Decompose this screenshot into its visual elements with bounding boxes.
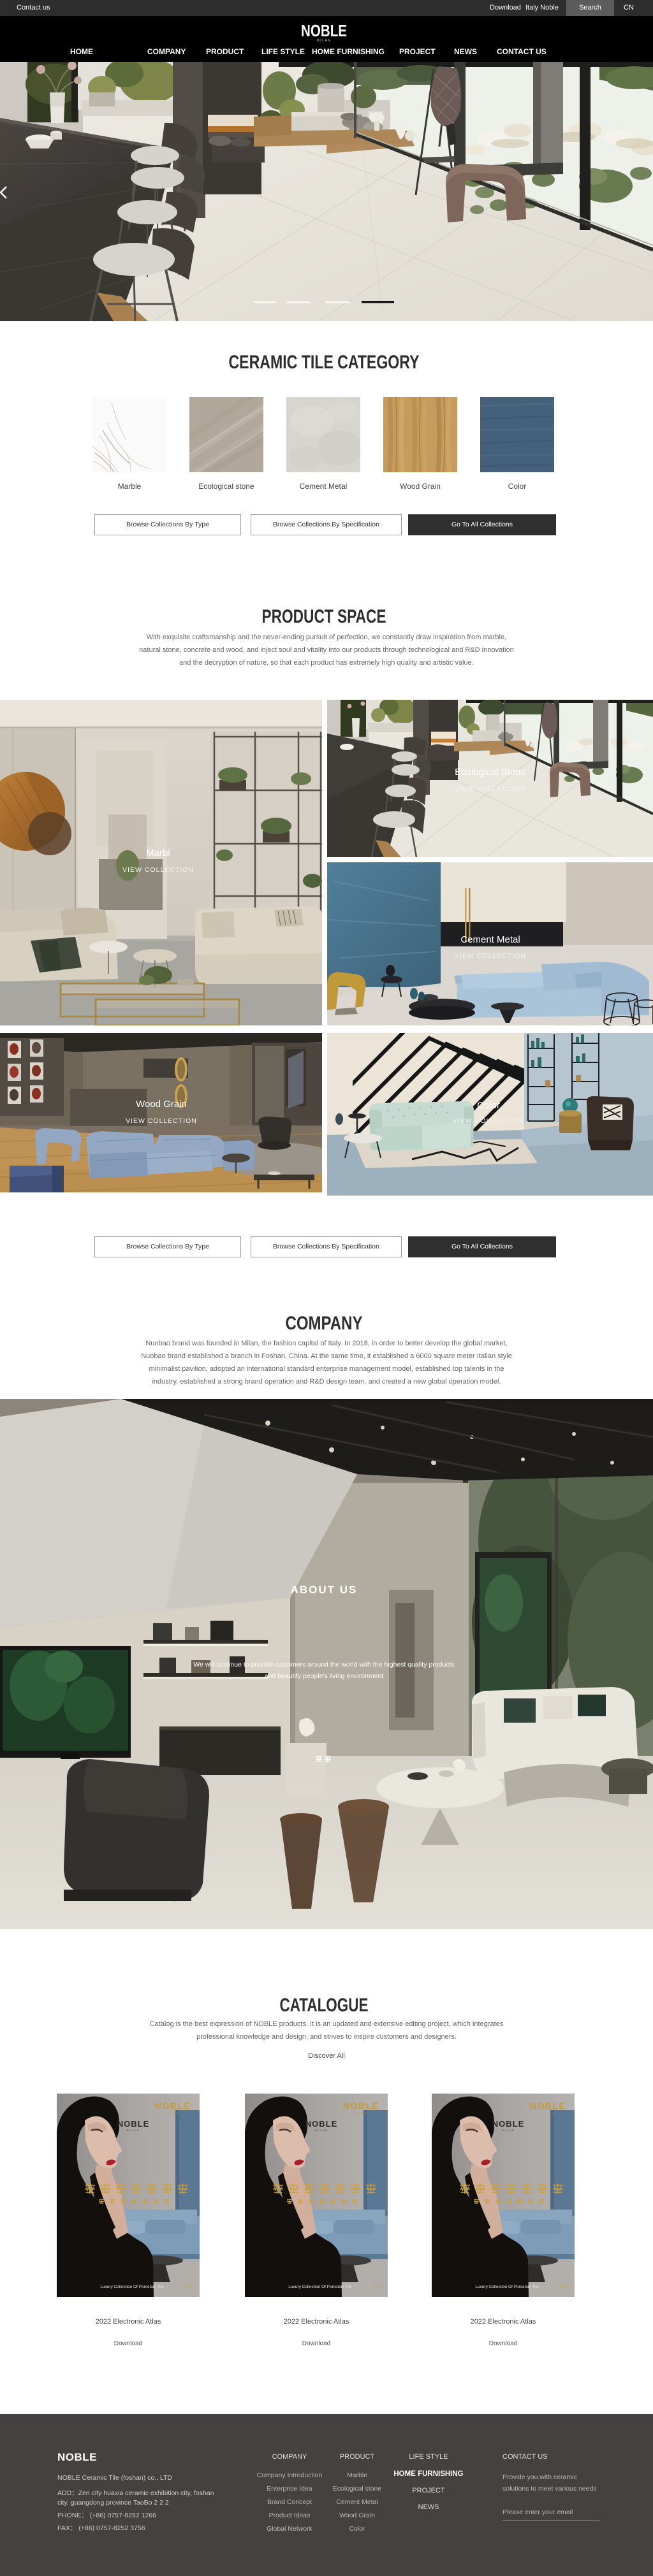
svg-text:We will continue to provide cu: We will continue to provide customers ar…: [193, 1661, 455, 1668]
svg-text:Marbl: Marbl: [146, 848, 170, 858]
svg-text:Luxury Collection Of Porcelain: Luxury Collection Of Porcelain Tile: [288, 2285, 352, 2289]
svg-text:CATALOGUE: CATALOGUE: [280, 1995, 369, 2015]
svg-text:NOBLE: NOBLE: [492, 2119, 525, 2129]
svg-text:MILAN: MILAN: [127, 2129, 140, 2132]
svg-text:Wood Grain: Wood Grain: [136, 1099, 187, 1110]
svg-text:VIEW COLLECTION: VIEW COLLECTION: [122, 866, 194, 874]
svg-text:MILAN: MILAN: [354, 2111, 368, 2115]
svg-text:NOBLE: NOBLE: [343, 2101, 379, 2111]
svg-text:VIEW COLLECTION: VIEW COLLECTION: [126, 1117, 197, 1125]
svg-text:and beautify people's living e: and beautify people's living environment: [265, 1672, 384, 1680]
svg-text:MILAN: MILAN: [502, 2129, 515, 2132]
svg-text:MILAN: MILAN: [315, 2129, 328, 2132]
svg-text:VIEW COLLECTION: VIEW COLLECTION: [455, 952, 526, 960]
svg-text:Color: Color: [477, 1100, 500, 1111]
svg-text:PRODUCT SPACE: PRODUCT SPACE: [262, 606, 386, 626]
svg-text:NOBLE: NOBLE: [155, 2101, 191, 2111]
svg-text:Ecological Stone: Ecological Stone: [455, 767, 526, 778]
svg-text:2022: 2022: [372, 2285, 383, 2289]
svg-text:NOBLE: NOBLE: [305, 2119, 338, 2129]
svg-text:ABOUT US: ABOUT US: [291, 1584, 358, 1596]
svg-text:Luxury Collection Of Porcelain: Luxury Collection Of Porcelain Tile: [100, 2285, 164, 2289]
svg-text:VIEW COLLECTION: VIEW COLLECTION: [455, 785, 526, 793]
svg-text:MILAN: MILAN: [317, 39, 332, 43]
svg-text:2022: 2022: [184, 2285, 194, 2289]
svg-text:NOBLE: NOBLE: [530, 2101, 566, 2111]
svg-text:NOBLE: NOBLE: [301, 21, 347, 40]
svg-text:NOBLE: NOBLE: [117, 2119, 150, 2129]
svg-text:Cement Metal: Cement Metal: [460, 934, 520, 945]
svg-text:MILAN: MILAN: [166, 2111, 180, 2115]
svg-text:MILAN: MILAN: [541, 2111, 555, 2115]
svg-text:Luxury Collection Of Porcelain: Luxury Collection Of Porcelain Tile: [475, 2285, 539, 2289]
svg-text:2022: 2022: [559, 2285, 569, 2289]
svg-text:CERAMIC TILE CATEGORY: CERAMIC TILE CATEGORY: [229, 352, 420, 372]
svg-text:VIEW COLLECTION: VIEW COLLECTION: [453, 1117, 524, 1125]
svg-text:COMPANY: COMPANY: [286, 1313, 363, 1333]
